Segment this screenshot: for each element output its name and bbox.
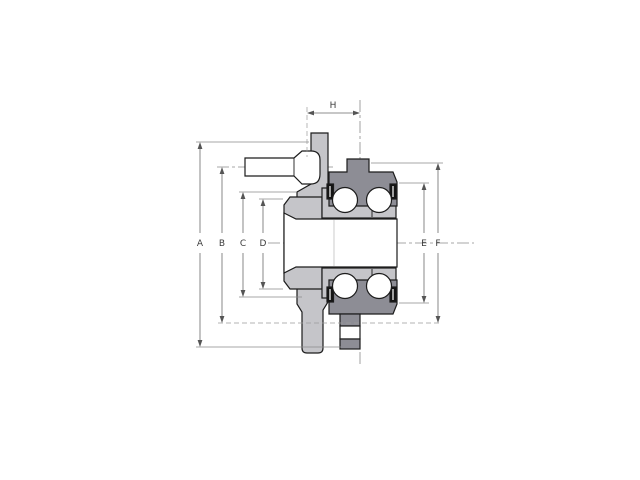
arrow-F-bottom: [436, 316, 441, 323]
dimension-A: A: [197, 142, 204, 347]
drawing-canvas: A B C D E F: [0, 0, 640, 480]
encoder-band-middle: [340, 326, 360, 339]
encoder-band-top: [340, 314, 360, 326]
dim-label-A: A: [197, 239, 204, 249]
arrow-D-bottom: [261, 282, 266, 289]
dimension-D: D: [260, 199, 267, 289]
ball-lower-right: [367, 274, 392, 299]
dim-label-F: F: [435, 239, 440, 249]
encoder-band-bottom: [340, 339, 360, 349]
dim-label-H: H: [330, 101, 337, 111]
arrow-D-top: [261, 199, 266, 206]
arrow-F-top: [436, 163, 441, 170]
arrow-B-bottom: [220, 316, 225, 323]
ball-upper-left: [333, 188, 358, 213]
arrow-C-top: [241, 192, 246, 199]
dimension-F: F: [435, 163, 440, 323]
center-bore: [284, 213, 397, 273]
dimension-H: H: [307, 101, 360, 115]
dimension-B: B: [219, 167, 225, 323]
arrow-C-bottom: [241, 290, 246, 297]
encoder-stack: [340, 314, 360, 349]
arrow-A-bottom: [198, 340, 203, 347]
dim-label-E: E: [421, 239, 427, 249]
dim-label-D: D: [260, 239, 267, 249]
arrow-H-left: [307, 111, 314, 116]
dimension-C: C: [240, 192, 246, 297]
ball-upper-right: [367, 188, 392, 213]
wheel-stud: [245, 151, 320, 184]
arrow-A-top: [198, 142, 203, 149]
arrow-E-bottom: [422, 296, 427, 303]
dim-label-B: B: [219, 239, 225, 249]
dim-label-C: C: [240, 239, 246, 249]
ball-lower-left: [333, 274, 358, 299]
arrow-B-top: [220, 167, 225, 174]
hub-bearing-diagram: A B C D E F: [0, 0, 640, 480]
arrow-H-right: [353, 111, 360, 116]
dimension-E: E: [421, 183, 427, 303]
arrow-E-top: [422, 183, 427, 190]
